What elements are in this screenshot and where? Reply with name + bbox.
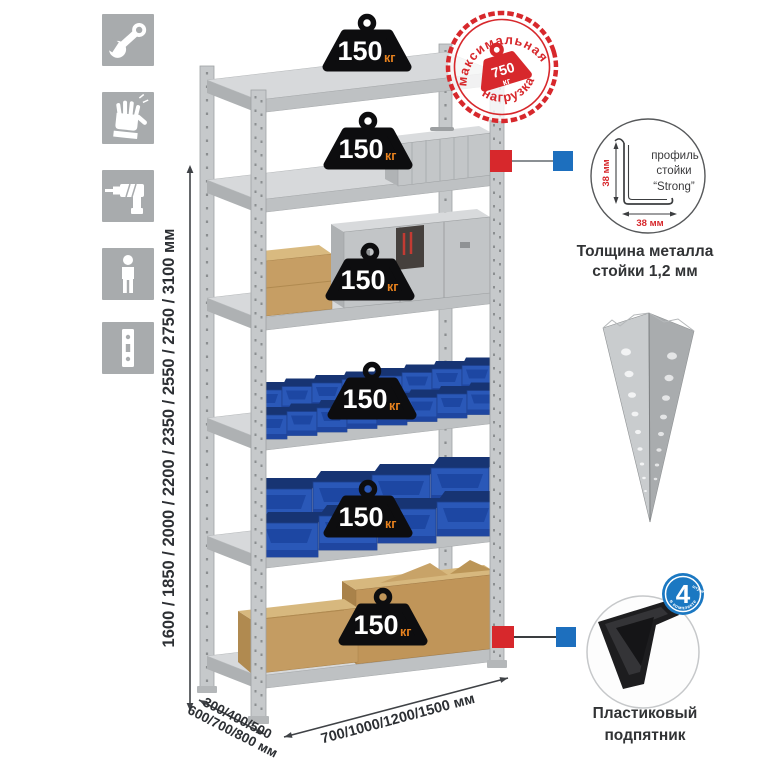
svg-text:подпятник: подпятник	[604, 727, 685, 744]
svg-text:кг: кг	[387, 280, 398, 294]
infographic-canvas: 1600 / 1850 / 2000 / 2200 / 2350 / 2550 …	[0, 0, 765, 765]
shelving-infographic: 1600 / 1850 / 2000 / 2200 / 2350 / 2550 …	[0, 0, 765, 765]
svg-text:4: 4	[676, 579, 691, 609]
profile-callout-connector	[490, 150, 573, 172]
weight-badge: 150 кг	[328, 115, 408, 166]
foot-callout-connector	[492, 626, 576, 648]
svg-text:кг: кг	[389, 399, 400, 413]
red-marker	[492, 626, 514, 648]
svg-text:Толщина металла: Толщина металла	[577, 243, 714, 260]
svg-text:Пластиковый: Пластиковый	[593, 705, 698, 722]
perforated-post-icon	[102, 322, 154, 374]
svg-text:38 мм: 38 мм	[601, 159, 612, 186]
svg-text:150: 150	[338, 502, 383, 532]
quantity-badge: 4 штуки в комплекте	[662, 573, 705, 615]
depth-dimension: 300/400/500 600/700/800 мм	[185, 690, 286, 761]
gloves-icon	[102, 92, 154, 144]
left-icon-column	[102, 14, 154, 374]
plastic-foot-caption: Пластиковый подпятник	[593, 705, 698, 744]
plastic-foot-detail: 4 штуки в комплекте	[587, 573, 705, 708]
blue-marker	[553, 151, 573, 171]
width-dimension: 700/1000/1200/1500 мм	[284, 677, 508, 747]
svg-text:кг: кг	[385, 517, 396, 531]
rack-post-back-left	[197, 66, 217, 693]
drill-icon	[102, 170, 154, 222]
svg-text:профиль: профиль	[651, 150, 699, 162]
height-dimension-label: 1600 / 1850 / 2000 / 2200 / 2350 / 2550 …	[160, 229, 178, 648]
red-marker	[490, 150, 512, 172]
width-dimension-label: 700/1000/1200/1500 мм	[319, 691, 476, 747]
weight-badge: 150 кг	[327, 17, 407, 68]
svg-text:кг: кг	[384, 51, 395, 65]
svg-text:“Strong”: “Strong”	[653, 181, 695, 193]
blue-marker	[556, 627, 576, 647]
svg-text:кг: кг	[385, 149, 396, 163]
svg-text:150: 150	[340, 265, 385, 295]
svg-text:150: 150	[342, 384, 387, 414]
upright-profile-image	[603, 313, 694, 522]
metal-thickness-caption: Толщина металла стойки 1,2 мм	[577, 243, 714, 280]
svg-text:150: 150	[353, 610, 398, 640]
svg-text:кг: кг	[400, 625, 411, 639]
max-load-stamp: максимальная нагрузка 750 кг	[435, 0, 570, 134]
wrench-icon	[102, 14, 154, 66]
svg-text:стойки: стойки	[656, 165, 691, 177]
profile-detail: 38 мм 38 мм профиль стойки “Strong”	[591, 119, 705, 233]
rack-post-front-left	[248, 90, 269, 724]
person-icon	[102, 248, 154, 300]
svg-text:150: 150	[338, 134, 383, 164]
svg-text:38 мм: 38 мм	[636, 218, 663, 229]
svg-text:150: 150	[337, 36, 382, 66]
svg-text:стойки 1,2 мм: стойки 1,2 мм	[592, 263, 697, 280]
height-dimension: 1600 / 1850 / 2000 / 2200 / 2350 / 2550 …	[160, 165, 193, 711]
